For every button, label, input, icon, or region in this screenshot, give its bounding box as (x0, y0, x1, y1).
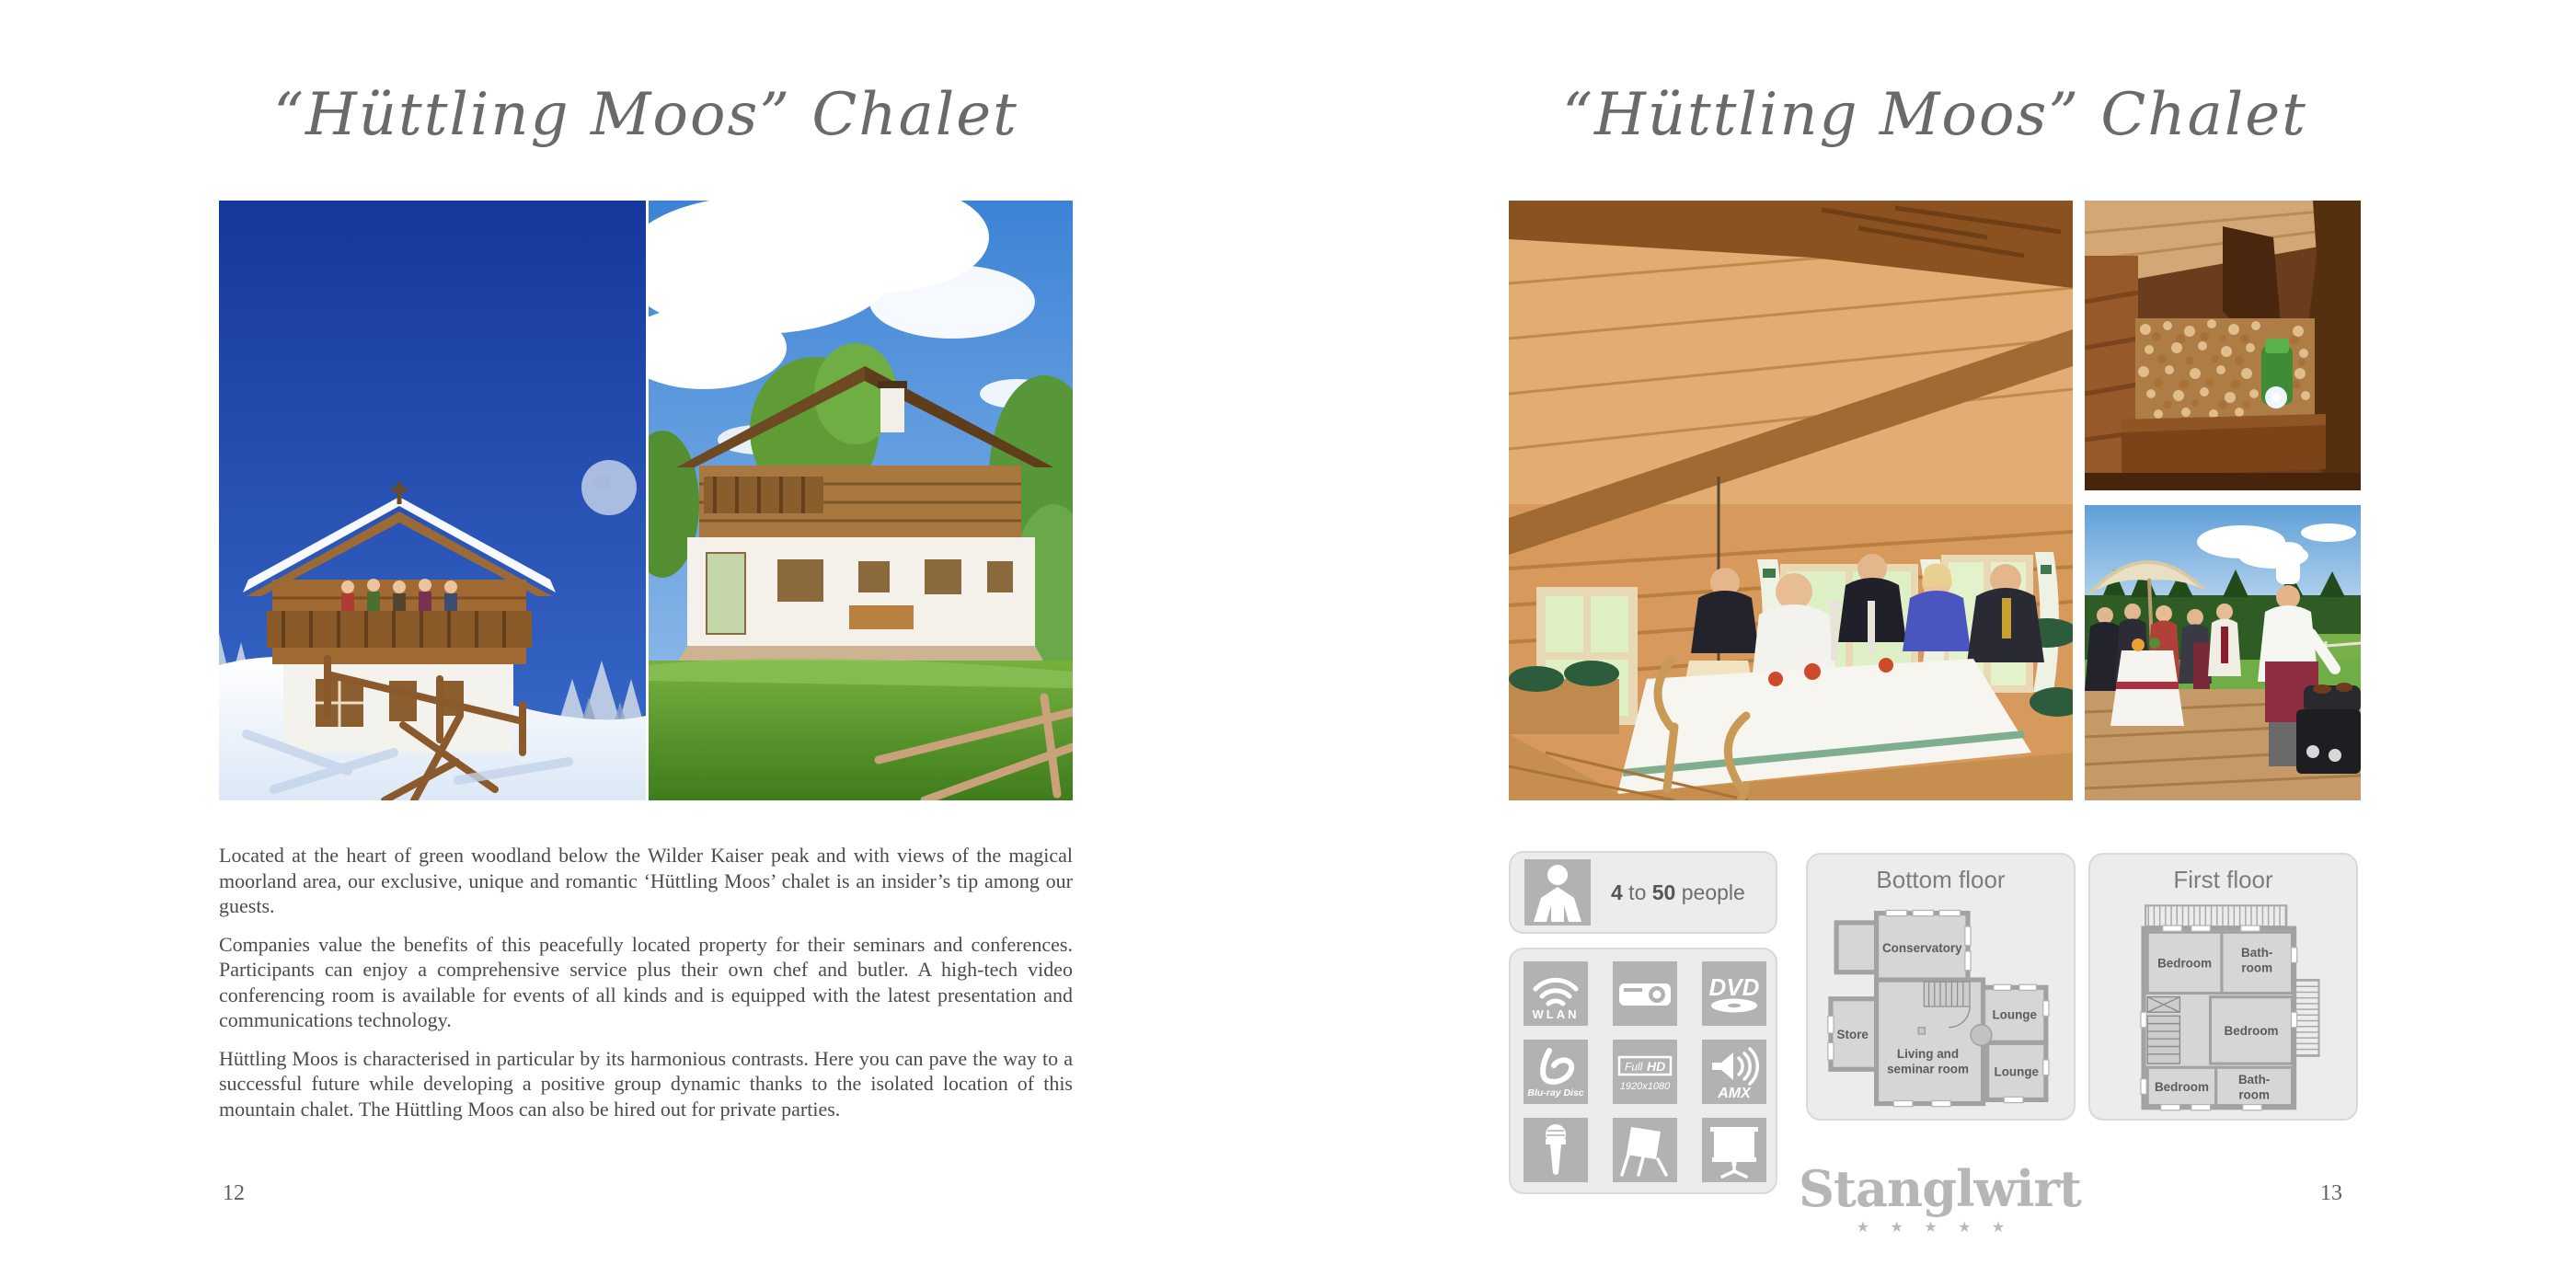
projection-screen-icon (1702, 1118, 1766, 1182)
svg-text:room: room (2238, 1087, 2270, 1101)
amx-sound-icon: AMX (1702, 1040, 1766, 1104)
svg-text:Full: Full (1625, 1061, 1643, 1074)
capacity-max: 50 (1652, 880, 1676, 904)
full-hd-icon: Full HD 1920x1080 (1613, 1040, 1677, 1104)
svg-text:Bath-: Bath- (2237, 1073, 2269, 1087)
capacity-card: 4 to 50 people (1509, 851, 1777, 934)
brand-name: Stanglwirt (1799, 1161, 2071, 1216)
flipchart-icon (1613, 1118, 1677, 1182)
dining-room-illustration (1509, 201, 2073, 800)
svg-text:Bath-: Bath- (2241, 946, 2272, 960)
svg-text:Bedroom: Bedroom (2224, 1024, 2278, 1038)
floorplan-bottom-card: Bottom floor (1806, 853, 2076, 1121)
photo-firewood (2085, 201, 2361, 490)
svg-text:HD: HD (1647, 1059, 1665, 1074)
svg-text:AMX: AMX (1717, 1086, 1752, 1101)
svg-text:seminar room: seminar room (1887, 1062, 1969, 1075)
svg-text:Bedroom: Bedroom (2157, 957, 2212, 971)
capacity-unit: people (1675, 880, 1744, 904)
right-page-title: “Hüttling Moos” Chalet (1509, 55, 2361, 175)
paragraph: Hüttling Moos is characterised in partic… (219, 1046, 1073, 1122)
svg-text:Bedroom: Bedroom (2154, 1080, 2208, 1094)
floorplan-first-title: First floor (2090, 866, 2356, 894)
left-page-body: Located at the heart of green woodland b… (219, 843, 1073, 1134)
paragraph: Companies value the benefits of this pea… (219, 932, 1073, 1033)
wlan-icon: WLAN (1524, 961, 1588, 1026)
photo-winter-chalet (219, 201, 646, 800)
svg-text:Blu-ray Disc: Blu-ray Disc (1527, 1087, 1583, 1098)
photo-summer-chalet (649, 201, 1073, 800)
svg-text:room: room (2241, 961, 2272, 975)
brochure-spread: “Hüttling Moos” Chalet (0, 0, 2576, 1288)
capacity-connector: to (1623, 880, 1652, 904)
svg-text:Living and: Living and (1896, 1047, 1958, 1061)
blu-ray-icon: Blu-ray Disc (1524, 1040, 1588, 1104)
floorplan-first-drawing: Bedroom Bath- room Bedroom Bedroom Bath-… (2099, 898, 2348, 1115)
capacity-text: 4 to 50 people (1611, 880, 1745, 905)
svg-text:Conservatory: Conservatory (1881, 941, 1961, 955)
winter-chalet-illustration (219, 201, 646, 800)
svg-text:1920x1080: 1920x1080 (1620, 1081, 1671, 1092)
summer-chalet-illustration (649, 201, 1073, 800)
left-page-number: 12 (223, 1181, 245, 1206)
svg-text:WLAN: WLAN (1533, 1007, 1580, 1021)
floorplan-bottom-title: Bottom floor (1808, 866, 2074, 894)
dvd-icon: DVD (1702, 961, 1766, 1026)
barbecue-illustration (2085, 505, 2361, 800)
brand-stars: ★ ★ ★ ★ ★ (1799, 1218, 2071, 1236)
svg-text:Lounge: Lounge (1994, 1065, 2039, 1079)
capacity-min: 4 (1611, 880, 1623, 904)
photo-barbecue (2085, 505, 2361, 800)
paragraph: Located at the heart of green woodland b… (219, 843, 1073, 919)
brand-logo: Stanglwirt ★ ★ ★ ★ ★ (1799, 1161, 2071, 1236)
people-icon (1524, 859, 1591, 926)
equipment-card: WLAN DVD Blu-ray Disc (1509, 948, 1777, 1194)
svg-text:DVD: DVD (1709, 973, 1760, 1001)
svg-text:Lounge: Lounge (1992, 1007, 2037, 1021)
projector-icon (1613, 961, 1677, 1026)
photo-dining-room (1509, 201, 2073, 800)
svg-text:Store: Store (1836, 1028, 1869, 1041)
microphone-icon (1524, 1118, 1588, 1182)
right-page-number: 13 (2320, 1181, 2342, 1206)
firewood-illustration (2085, 201, 2361, 490)
floorplan-first-card: First floor (2088, 853, 2358, 1121)
left-page-title: “Hüttling Moos” Chalet (219, 55, 1073, 175)
floorplan-bottom-drawing: Conservatory Store Living and seminar ro… (1817, 898, 2065, 1115)
